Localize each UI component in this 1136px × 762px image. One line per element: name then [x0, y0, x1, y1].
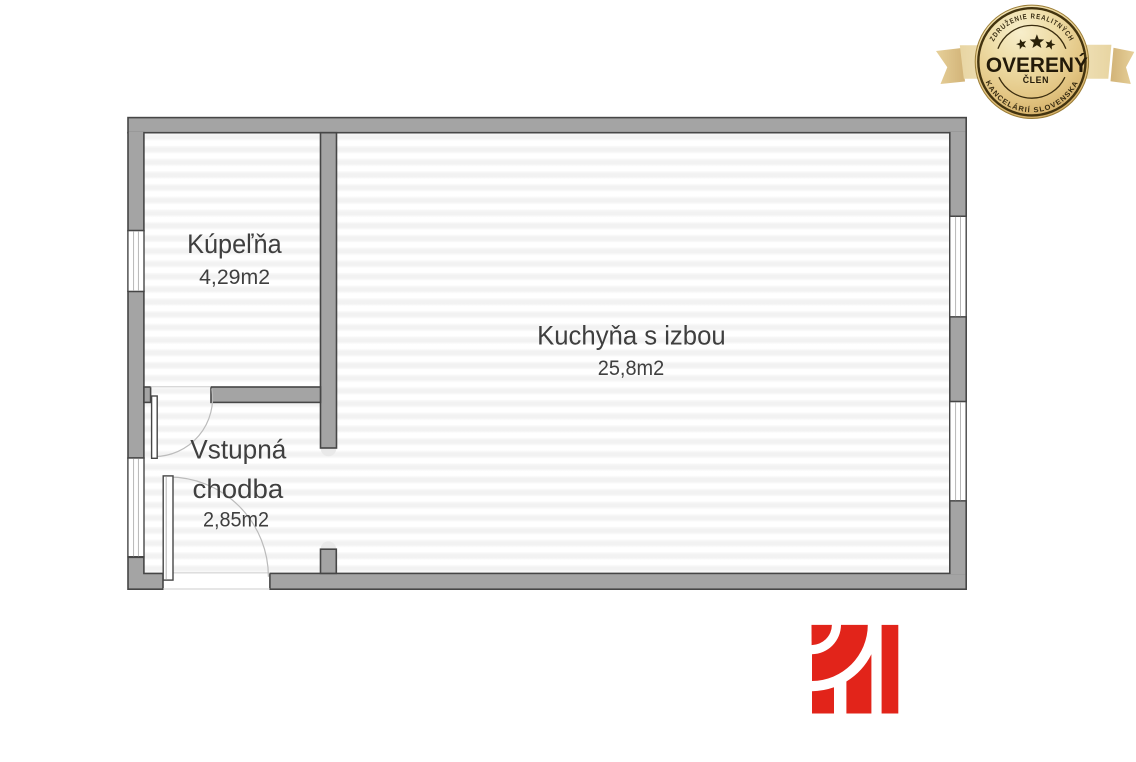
svg-text:Kuchyňa s izbou: Kuchyňa s izbou — [537, 320, 726, 350]
svg-text:OVERENÝ: OVERENÝ — [986, 53, 1088, 77]
svg-text:ČLEN: ČLEN — [1023, 74, 1049, 85]
svg-text:Vstupná: Vstupná — [190, 435, 287, 465]
svg-text:Kúpeľňa: Kúpeľňa — [187, 229, 282, 259]
svg-text:chodba: chodba — [193, 474, 285, 504]
svg-text:2,85m2: 2,85m2 — [203, 507, 269, 531]
svg-text:4,29m2: 4,29m2 — [199, 265, 270, 289]
svg-text:25,8m2: 25,8m2 — [598, 356, 665, 380]
